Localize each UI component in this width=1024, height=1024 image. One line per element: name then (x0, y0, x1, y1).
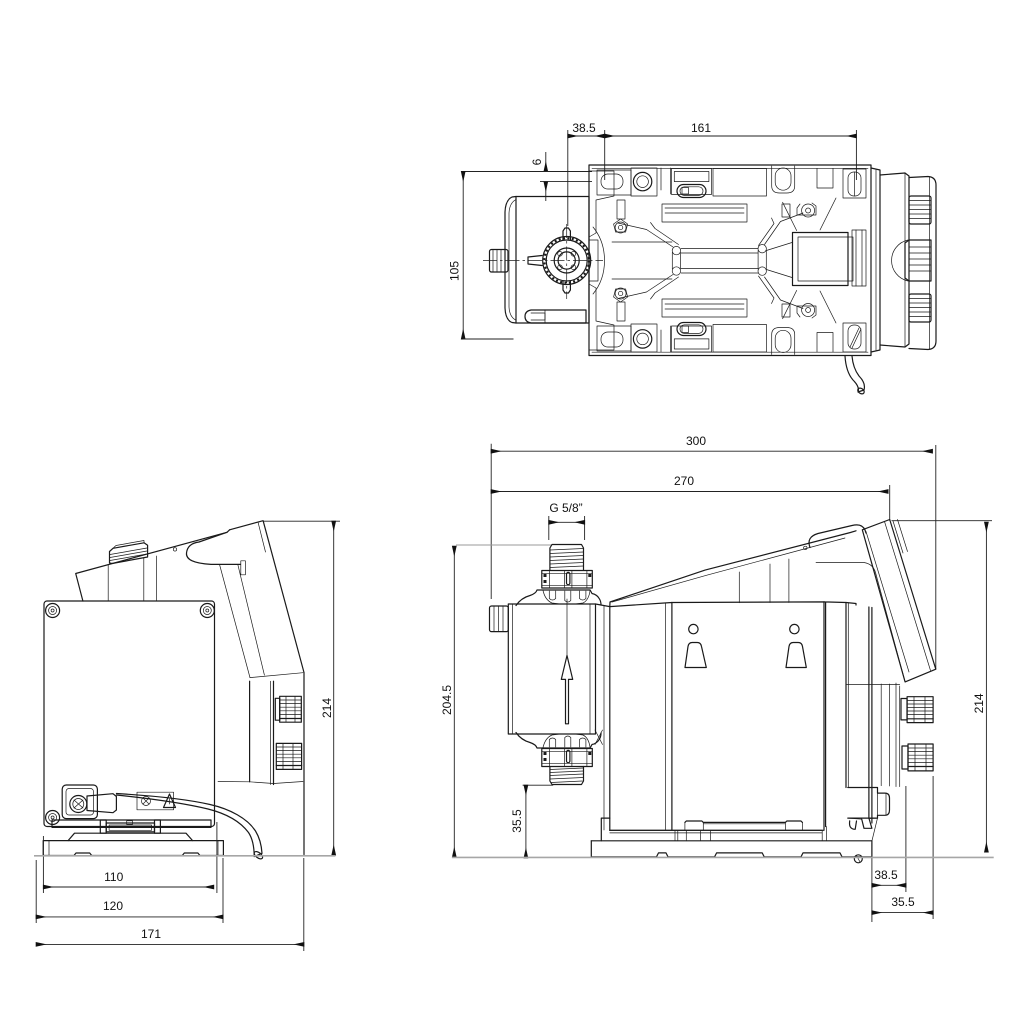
svg-text:270: 270 (674, 474, 694, 488)
svg-text:204.5: 204.5 (440, 685, 454, 715)
svg-text:35.5: 35.5 (891, 895, 915, 909)
svg-text:214: 214 (320, 698, 334, 718)
svg-text:35.5: 35.5 (510, 809, 524, 833)
svg-text:105: 105 (448, 261, 462, 281)
svg-text:6: 6 (530, 158, 544, 165)
svg-text:300: 300 (686, 434, 706, 448)
svg-text:110: 110 (104, 870, 123, 884)
svg-text:171: 171 (141, 927, 161, 941)
svg-text:120: 120 (103, 899, 123, 913)
svg-text:G 5/8”: G 5/8” (549, 501, 582, 515)
svg-text:38.5: 38.5 (874, 868, 898, 882)
svg-text:38.5: 38.5 (572, 121, 596, 135)
svg-text:161: 161 (691, 121, 711, 135)
svg-text:214: 214 (972, 693, 986, 713)
